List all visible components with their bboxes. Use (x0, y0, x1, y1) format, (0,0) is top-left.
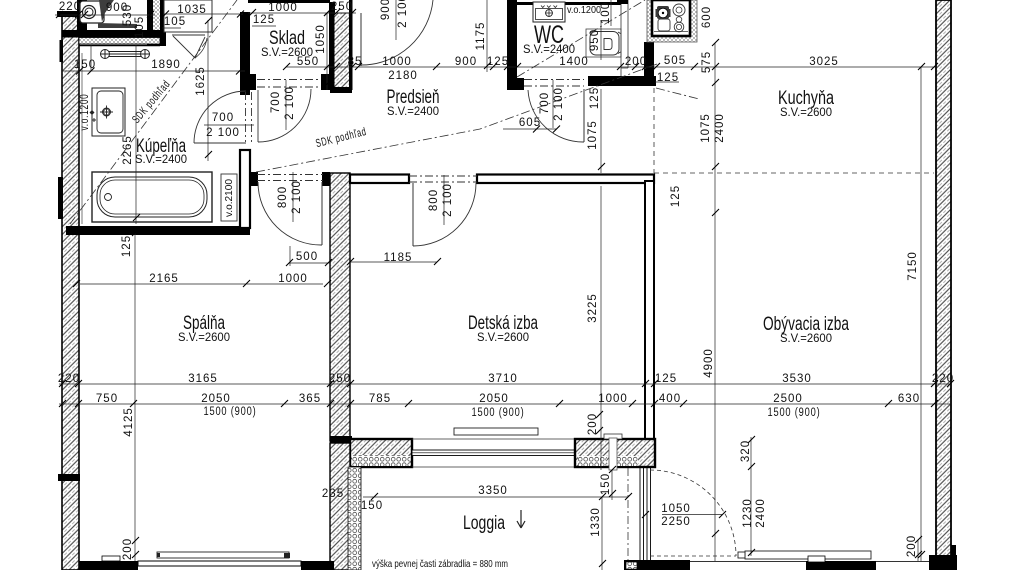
svg-text:500: 500 (296, 251, 318, 263)
svg-text:S.V.=2400: S.V.=2400 (523, 44, 575, 56)
svg-text:2 100: 2 100 (397, 0, 409, 28)
svg-text:1050: 1050 (315, 24, 327, 54)
svg-text:v.o.1200: v.o.1200 (79, 94, 91, 131)
svg-text:125: 125 (589, 87, 601, 109)
svg-text:150: 150 (361, 500, 383, 512)
svg-text:105: 105 (164, 16, 186, 28)
svg-text:250: 250 (329, 373, 351, 385)
svg-text:S.V.=2400: S.V.=2400 (135, 154, 187, 166)
svg-text:200: 200 (587, 413, 599, 435)
svg-text:100: 100 (600, 2, 612, 24)
svg-text:125: 125 (670, 185, 682, 207)
svg-text:575: 575 (701, 51, 713, 73)
svg-text:700: 700 (212, 112, 234, 124)
svg-text:3350: 3350 (478, 485, 508, 497)
svg-text:220: 220 (932, 373, 954, 385)
svg-text:2 100: 2 100 (553, 87, 565, 121)
svg-text:2250: 2250 (661, 516, 691, 528)
svg-text:785: 785 (369, 393, 391, 405)
svg-text:1175: 1175 (475, 22, 487, 51)
svg-text:505: 505 (664, 55, 686, 67)
svg-text:2180: 2180 (388, 70, 418, 82)
svg-text:605: 605 (519, 117, 541, 129)
svg-text:900: 900 (455, 56, 477, 68)
svg-text:150: 150 (74, 59, 96, 71)
svg-text:Loggia: Loggia (463, 513, 505, 534)
svg-text:750: 750 (96, 393, 118, 405)
svg-text:výška pevnej časti zábradlia =: výška pevnej časti zábradlia = 880 mm (372, 559, 508, 570)
svg-text:400: 400 (659, 393, 681, 405)
svg-text:Obývacia izba: Obývacia izba (763, 314, 849, 335)
svg-text:125: 125 (253, 14, 275, 26)
svg-text:1625: 1625 (195, 66, 207, 96)
svg-text:7150: 7150 (907, 251, 919, 281)
svg-text:200: 200 (122, 538, 134, 560)
svg-text:200: 200 (625, 56, 647, 68)
svg-text:S.V.=2600: S.V.=2600 (477, 332, 529, 344)
svg-text:125: 125 (121, 235, 133, 257)
svg-text:125: 125 (487, 56, 509, 68)
svg-text:550: 550 (297, 56, 319, 68)
svg-text:3530: 3530 (782, 373, 812, 385)
svg-text:530: 530 (122, 4, 134, 26)
svg-text:S.V.=2600: S.V.=2600 (780, 333, 832, 345)
svg-text:Sklad: Sklad (269, 28, 305, 49)
svg-text:2050: 2050 (479, 393, 509, 405)
svg-text:2400: 2400 (755, 498, 767, 528)
svg-text:4125: 4125 (123, 407, 135, 437)
svg-text:220: 220 (58, 373, 80, 385)
svg-text:3225: 3225 (587, 293, 599, 323)
svg-text:125: 125 (655, 373, 677, 385)
svg-text:1000: 1000 (598, 393, 628, 405)
svg-text:Predsieň: Predsieň (387, 87, 440, 108)
svg-text:900: 900 (380, 0, 392, 20)
svg-text:365: 365 (299, 393, 321, 405)
svg-text:200: 200 (906, 535, 918, 557)
svg-text:250: 250 (331, 1, 353, 13)
svg-text:1330: 1330 (590, 507, 602, 537)
svg-text:1000: 1000 (278, 273, 308, 285)
svg-text:320: 320 (740, 440, 752, 462)
svg-text:800: 800 (428, 189, 440, 211)
svg-text:1230: 1230 (742, 498, 754, 528)
svg-text:S.V.=2400: S.V.=2400 (387, 106, 439, 118)
svg-text:1400: 1400 (559, 56, 589, 68)
svg-text:1050: 1050 (661, 503, 691, 515)
svg-text:1890: 1890 (151, 59, 181, 71)
svg-text:1000: 1000 (382, 56, 412, 68)
svg-text:2 100: 2 100 (206, 127, 240, 139)
svg-text:1075: 1075 (700, 113, 712, 143)
svg-text:235: 235 (322, 488, 344, 500)
svg-text:S.V.=2600: S.V.=2600 (178, 332, 230, 344)
svg-text:v.o.2100: v.o.2100 (224, 179, 235, 217)
svg-text:630: 630 (898, 393, 920, 405)
svg-text:3025: 3025 (809, 56, 839, 68)
svg-text:2050: 2050 (201, 393, 231, 405)
svg-text:1500 (900): 1500 (900) (472, 407, 525, 419)
svg-text:1185: 1185 (384, 252, 413, 264)
svg-text:700: 700 (539, 92, 551, 114)
svg-text:1000: 1000 (268, 2, 298, 14)
svg-text:1500 (900): 1500 (900) (204, 406, 257, 418)
svg-text:Spálňa: Spálňa (183, 313, 225, 334)
svg-text:2400: 2400 (714, 113, 726, 143)
svg-text:1075: 1075 (587, 120, 599, 150)
svg-text:85: 85 (348, 56, 363, 68)
svg-text:3165: 3165 (188, 373, 218, 385)
svg-text:3710: 3710 (488, 373, 518, 385)
svg-text:2165: 2165 (149, 273, 179, 285)
svg-text:150: 150 (600, 473, 612, 495)
svg-text:4900: 4900 (703, 348, 715, 378)
svg-text:220: 220 (59, 1, 81, 13)
svg-text:950: 950 (589, 29, 601, 51)
svg-text:1500 (900): 1500 (900) (768, 407, 821, 419)
svg-text:2500: 2500 (773, 393, 803, 405)
svg-text:Detská izba: Detská izba (468, 313, 538, 334)
svg-text:Kuchyňa: Kuchyňa (778, 88, 834, 109)
svg-text:2265: 2265 (122, 135, 134, 165)
svg-text:700: 700 (270, 91, 282, 113)
svg-text:105: 105 (134, 16, 146, 38)
svg-text:1035: 1035 (177, 4, 207, 16)
svg-text:800: 800 (277, 186, 289, 208)
svg-text:600: 600 (701, 6, 713, 28)
svg-text:S.V.=2600: S.V.=2600 (780, 107, 832, 119)
svg-text:v.o.1200: v.o.1200 (567, 5, 601, 16)
